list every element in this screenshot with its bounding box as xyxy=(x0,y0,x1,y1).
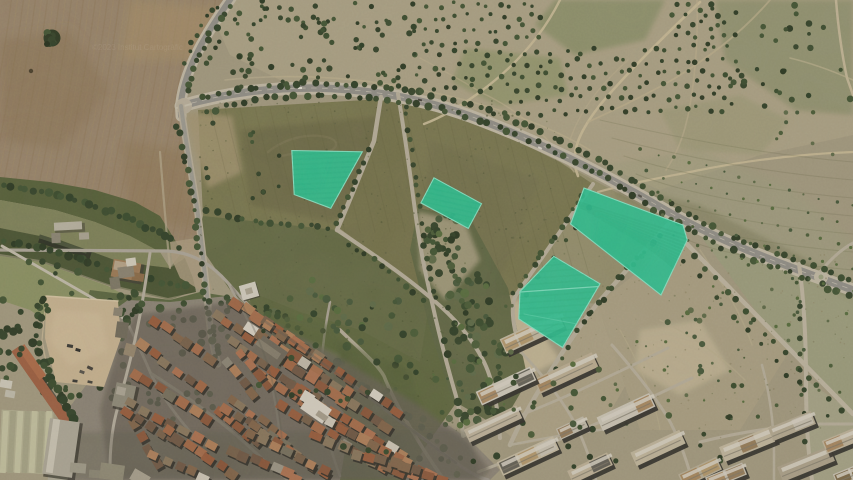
svg-text:©2023 Institut Cartogràfic: ©2023 Institut Cartogràfic xyxy=(92,43,183,52)
